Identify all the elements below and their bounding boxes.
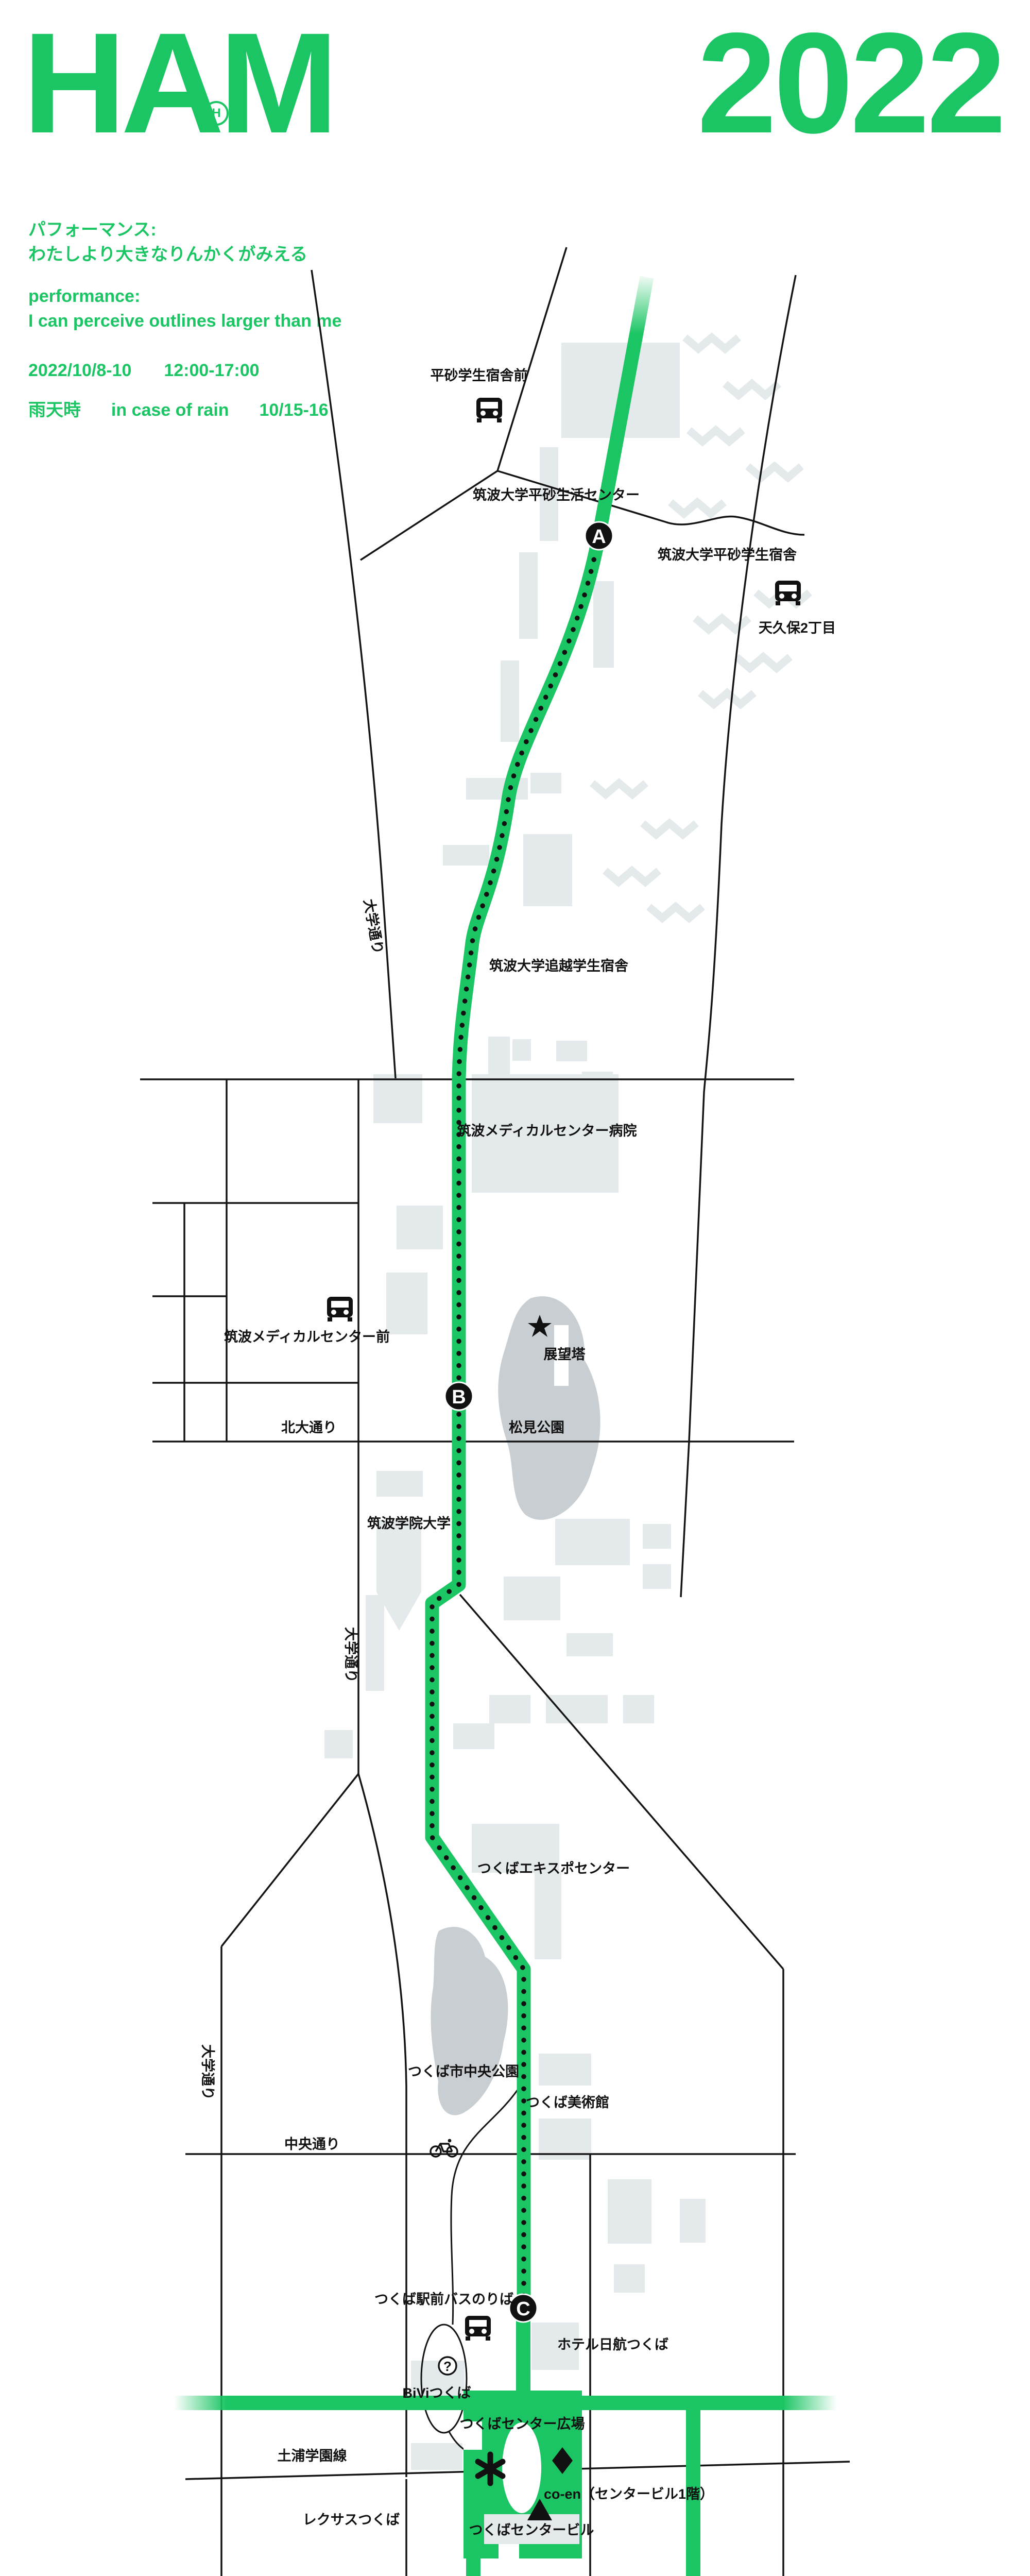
road xyxy=(360,247,566,560)
label-amakubo: 天久保2丁目 xyxy=(759,620,836,636)
label-bivi: BiViつくば xyxy=(402,2385,471,2401)
building xyxy=(623,1695,654,1723)
label-medical-mae: 筑波メディカルセンター前 xyxy=(224,1329,390,1345)
green-band-east xyxy=(582,2396,837,2410)
label-center-hiroba: つくばセンター広場 xyxy=(460,2416,585,2432)
route-map: A B C ? 平砂学生宿舎前 筑波大学平砂生活センター 筑波大学平砂学生宿舎 … xyxy=(0,0,1030,2576)
building xyxy=(489,1695,530,1723)
building xyxy=(443,845,489,866)
tourist-info-icon: ? xyxy=(439,2357,456,2375)
label-tsuchiura-line: 土浦学園線 xyxy=(278,2448,347,2464)
label-hirasuna-bus-stop: 平砂学生宿舎前 xyxy=(431,367,528,383)
road xyxy=(451,2088,519,2325)
building xyxy=(504,1577,560,1620)
building xyxy=(523,834,572,906)
building xyxy=(530,773,561,793)
label-gakuin-univ: 筑波学院大学 xyxy=(367,1515,451,1531)
building xyxy=(608,2179,651,2244)
label-kita-odori: 北大通り xyxy=(281,1420,337,1435)
roads-layer xyxy=(140,247,850,2576)
road xyxy=(312,270,396,1078)
building xyxy=(373,1074,422,1123)
label-museum: つくば美術館 xyxy=(526,2094,609,2110)
building xyxy=(680,2199,706,2243)
label-ekimae-bus: つくば駅前バスのりば xyxy=(374,2291,513,2307)
label-hotel-nikko: ホテル日航つくば xyxy=(557,2336,668,2352)
building xyxy=(566,1633,613,1656)
building xyxy=(643,1524,671,1549)
building xyxy=(614,2264,645,2293)
building xyxy=(546,1695,608,1723)
label-lexus: レクサスつくば xyxy=(303,2512,400,2528)
road xyxy=(358,1774,406,2477)
building xyxy=(512,1039,531,1061)
marker-c-letter: C xyxy=(516,2298,530,2320)
label-medical-hospital: 筑波メディカルセンター病院 xyxy=(457,1123,637,1139)
central-park-shape xyxy=(431,1927,508,2115)
route-connector xyxy=(516,2316,530,2395)
label-univ-ave-1: 大学通り xyxy=(361,897,386,955)
road xyxy=(221,1774,358,1946)
building xyxy=(501,660,519,742)
building xyxy=(555,1519,630,1565)
building-expo-tower xyxy=(535,1872,561,1959)
label-oikoshi-dorm: 筑波大学追越学生宿舎 xyxy=(489,958,628,974)
label-matsumi: 松見公園 xyxy=(509,1420,564,1435)
bus-stop-icon xyxy=(327,1297,353,1321)
label-univ-ave-3: 大学通り xyxy=(200,2044,216,2100)
label-coen: co-en（センタービル1階） xyxy=(544,2486,714,2502)
label-hirasuna-center: 筑波大学平砂生活センター xyxy=(473,487,640,503)
building-museum xyxy=(539,2054,591,2086)
bus-stop-icon xyxy=(476,398,502,422)
building xyxy=(386,1273,427,1334)
building xyxy=(397,1206,443,1249)
label-expo: つくばエキスポセンター xyxy=(477,1861,630,1876)
marker-a-letter: A xyxy=(592,526,606,548)
label-chuo-dori: 中央通り xyxy=(284,2137,340,2152)
label-center-bldg: つくばセンタービル xyxy=(469,2522,594,2538)
green-band-south xyxy=(466,2558,480,2576)
building xyxy=(556,1041,587,1061)
label-univ-ave-2: 大学通り xyxy=(343,1627,359,1683)
bus-stop-icon xyxy=(465,2316,491,2341)
building xyxy=(453,1723,494,1749)
label-tembo: 展望塔 xyxy=(544,1347,586,1362)
building xyxy=(411,2443,462,2470)
building xyxy=(593,581,614,668)
building xyxy=(376,1471,423,1497)
building xyxy=(643,1564,671,1589)
building xyxy=(324,1730,353,1758)
building xyxy=(366,1595,384,1691)
label-hirasuna-dorm: 筑波大学平砂学生宿舎 xyxy=(658,547,797,563)
matsumi-park-shape xyxy=(498,1296,600,1520)
building xyxy=(519,552,538,639)
plaza-oval-cutout xyxy=(502,2422,541,2513)
marker-b-letter: B xyxy=(452,1386,466,1408)
label-chuo-park: つくば市中央公園 xyxy=(408,2063,519,2079)
road xyxy=(460,1595,783,1969)
svg-text:?: ? xyxy=(443,2359,452,2374)
